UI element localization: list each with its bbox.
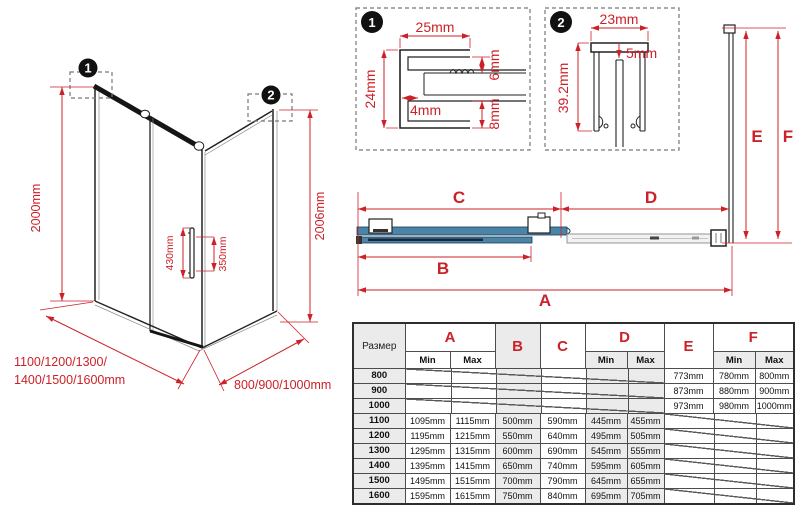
size-cell: 1400 [353, 459, 405, 474]
roller-block-right [528, 217, 550, 233]
col-header-b: B [495, 323, 540, 369]
d-max-cell: 655mm [627, 474, 664, 489]
table-header-row-1: Размер A B C D E F [353, 323, 794, 352]
side-panel-plan [729, 31, 733, 243]
na-cell [664, 444, 794, 459]
dim-2006mm-label: 2006mm [313, 192, 327, 241]
dim-b-label: B [437, 259, 449, 278]
f-max-cell: 1000mm [755, 399, 794, 414]
c-cell: 590mm [540, 414, 585, 429]
dim-height-right: 2006mm [279, 110, 327, 322]
detail-1-dims: 25mm 24mm 4mm 6mm 8mm [362, 19, 502, 130]
size-row-1100: 1100 1095mm 1115mm 500mm 590mm 445mm 455… [353, 414, 794, 429]
col-header-c: C [540, 323, 585, 369]
a-min-cell: 1295mm [405, 444, 450, 459]
size-cell: 1100 [353, 414, 405, 429]
dim-e-label: E [751, 127, 762, 146]
c-cell: 840mm [540, 489, 585, 505]
size-row-1500: 1500 1495mm 1515mm 700mm 790mm 645mm 655… [353, 474, 794, 489]
na-cell [405, 384, 664, 399]
a-max-cell: 1515mm [450, 474, 495, 489]
a-min-cell: 1095mm [405, 414, 450, 429]
d-max-cell: 555mm [627, 444, 664, 459]
d-min-cell: 495mm [585, 429, 627, 444]
c-cell: 740mm [540, 459, 585, 474]
a-min-cell: 1195mm [405, 429, 450, 444]
wall-profile-plan [711, 230, 726, 246]
f-min-cell: 980mm [713, 399, 755, 414]
a-max-cell: 1415mm [450, 459, 495, 474]
size-row-1600: 1600 1595mm 1615mm 750mm 840mm 695mm 705… [353, 489, 794, 505]
dim-height-left: 2000mm [29, 87, 94, 301]
d-max-cell: 605mm [627, 459, 664, 474]
col-header-a: A [405, 323, 495, 352]
d-min-cell: 545mm [585, 444, 627, 459]
detail-view-1: 1 25mm 24mm 4mm 6mm 8mm [356, 8, 530, 150]
sliding-door-assembly [356, 25, 735, 246]
b-cell: 650mm [495, 459, 540, 474]
perspective-view: 1 2 2000mm 2006mm 430mm 350mm [14, 59, 331, 393]
dim-39mm-label: 39.2mm [555, 63, 571, 114]
size-row-800: 800 773mm 780mm 800mm [353, 369, 794, 384]
e-cell: 973mm [664, 399, 713, 414]
callout-2-number: 2 [267, 88, 274, 103]
f-min-cell: 780mm [713, 369, 755, 384]
b-cell: 500mm [495, 414, 540, 429]
d-min-cell: 595mm [585, 459, 627, 474]
callout-2: 2 [248, 86, 292, 122]
na-cell [664, 429, 794, 444]
b-cell: 700mm [495, 474, 540, 489]
dim-handle: 430mm 350mm [164, 228, 229, 278]
dim-depth-label: 800/900/1000mm [234, 378, 331, 392]
d-max-header: Max [627, 352, 664, 369]
size-cell: 1300 [353, 444, 405, 459]
size-cell: 1200 [353, 429, 405, 444]
dim-a-label: A [539, 291, 551, 310]
door-handle [190, 228, 194, 278]
dim-d-label: D [645, 188, 657, 207]
dim-depth: 800/900/1000mm [204, 312, 331, 392]
detail-2-number: 2 [557, 15, 564, 30]
dimension-table: Размер A B C D E F Min Max Min Max Min M… [352, 322, 795, 505]
a-max-cell: 1615mm [450, 489, 495, 505]
dim-f-label: F [783, 127, 793, 146]
d-max-cell: 705mm [627, 489, 664, 505]
size-row-1200: 1200 1195mm 1215mm 550mm 640mm 495mm 505… [353, 429, 794, 444]
dim-25mm-label: 25mm [416, 19, 455, 35]
size-cell: 1600 [353, 489, 405, 505]
detail-1-number: 1 [368, 15, 375, 30]
size-cell: 900 [353, 384, 405, 399]
f-min-cell: 880mm [713, 384, 755, 399]
dim-8mm-label: 8mm [486, 98, 502, 129]
b-cell: 550mm [495, 429, 540, 444]
dim-c-label: C [453, 188, 465, 207]
size-row-900: 900 873mm 880mm 900mm [353, 384, 794, 399]
size-row-1400: 1400 1395mm 1415mm 650mm 740mm 595mm 605… [353, 459, 794, 474]
dim-5mm-label: 5mm [626, 45, 657, 61]
size-row-1300: 1300 1295mm 1315mm 600mm 690mm 545mm 555… [353, 444, 794, 459]
shower-enclosure-spec-sheet: 1 2 2000mm 2006mm 430mm 350mm [0, 0, 800, 512]
c-cell: 690mm [540, 444, 585, 459]
d-min-cell: 645mm [585, 474, 627, 489]
c-cell: 790mm [540, 474, 585, 489]
na-cell [664, 489, 794, 505]
d-min-header: Min [585, 352, 627, 369]
c-cell: 640mm [540, 429, 585, 444]
dim-width-label-line2: 1400/1500/1600mm [14, 373, 125, 387]
a-min-cell: 1495mm [405, 474, 450, 489]
dim-2000mm-label: 2000mm [29, 184, 43, 233]
dim-width: 1100/1200/1300/ 1400/1500/1600mm [14, 302, 200, 389]
dim-23mm-label: 23mm [600, 11, 639, 27]
b-cell: 750mm [495, 489, 540, 505]
detail-2-dims: 23mm 5mm 39.2mm [555, 11, 657, 131]
dim-width-label-line1: 1100/1200/1300/ [14, 355, 107, 369]
na-cell [405, 369, 664, 384]
na-cell [405, 399, 664, 414]
size-column-header: Размер [353, 323, 405, 369]
dim-24mm-label: 24mm [362, 70, 378, 109]
f-max-cell: 900mm [755, 384, 794, 399]
e-cell: 773mm [664, 369, 713, 384]
e-cell: 873mm [664, 384, 713, 399]
d-min-cell: 695mm [585, 489, 627, 505]
f-max-header: Max [755, 352, 794, 369]
size-cell: 800 [353, 369, 405, 384]
na-cell [664, 459, 794, 474]
na-cell [664, 474, 794, 489]
a-min-cell: 1595mm [405, 489, 450, 505]
na-cell [664, 414, 794, 429]
a-max-cell: 1315mm [450, 444, 495, 459]
col-header-e: E [664, 323, 713, 369]
f-max-cell: 800mm [755, 369, 794, 384]
col-header-f: F [713, 323, 794, 352]
a-max-header: Max [450, 352, 495, 369]
size-row-1000: 1000 973mm 980mm 1000mm [353, 399, 794, 414]
col-header-d: D [585, 323, 664, 352]
b-cell: 600mm [495, 444, 540, 459]
a-max-cell: 1215mm [450, 429, 495, 444]
dim-4mm-label: 4mm [410, 102, 441, 118]
dim-430mm-label: 430mm [164, 235, 176, 270]
dim-6mm-label: 6mm [486, 49, 502, 80]
detail-view-2: 2 23mm 5mm 39.2mm [545, 8, 679, 150]
d-max-cell: 505mm [627, 429, 664, 444]
size-cell: 1000 [353, 399, 405, 414]
a-max-cell: 1115mm [450, 414, 495, 429]
a-min-header: Min [405, 352, 450, 369]
size-cell: 1500 [353, 474, 405, 489]
plan-view: C D B A E F [356, 25, 793, 310]
size-table: Размер A B C D E F Min Max Min Max Min M… [352, 322, 795, 505]
f-min-header: Min [713, 352, 755, 369]
dim-350mm-label: 350mm [217, 236, 229, 271]
enclosure-frame [94, 86, 277, 351]
a-min-cell: 1395mm [405, 459, 450, 474]
d-min-cell: 445mm [585, 414, 627, 429]
d-max-cell: 455mm [627, 414, 664, 429]
callout-1-number: 1 [84, 61, 91, 76]
